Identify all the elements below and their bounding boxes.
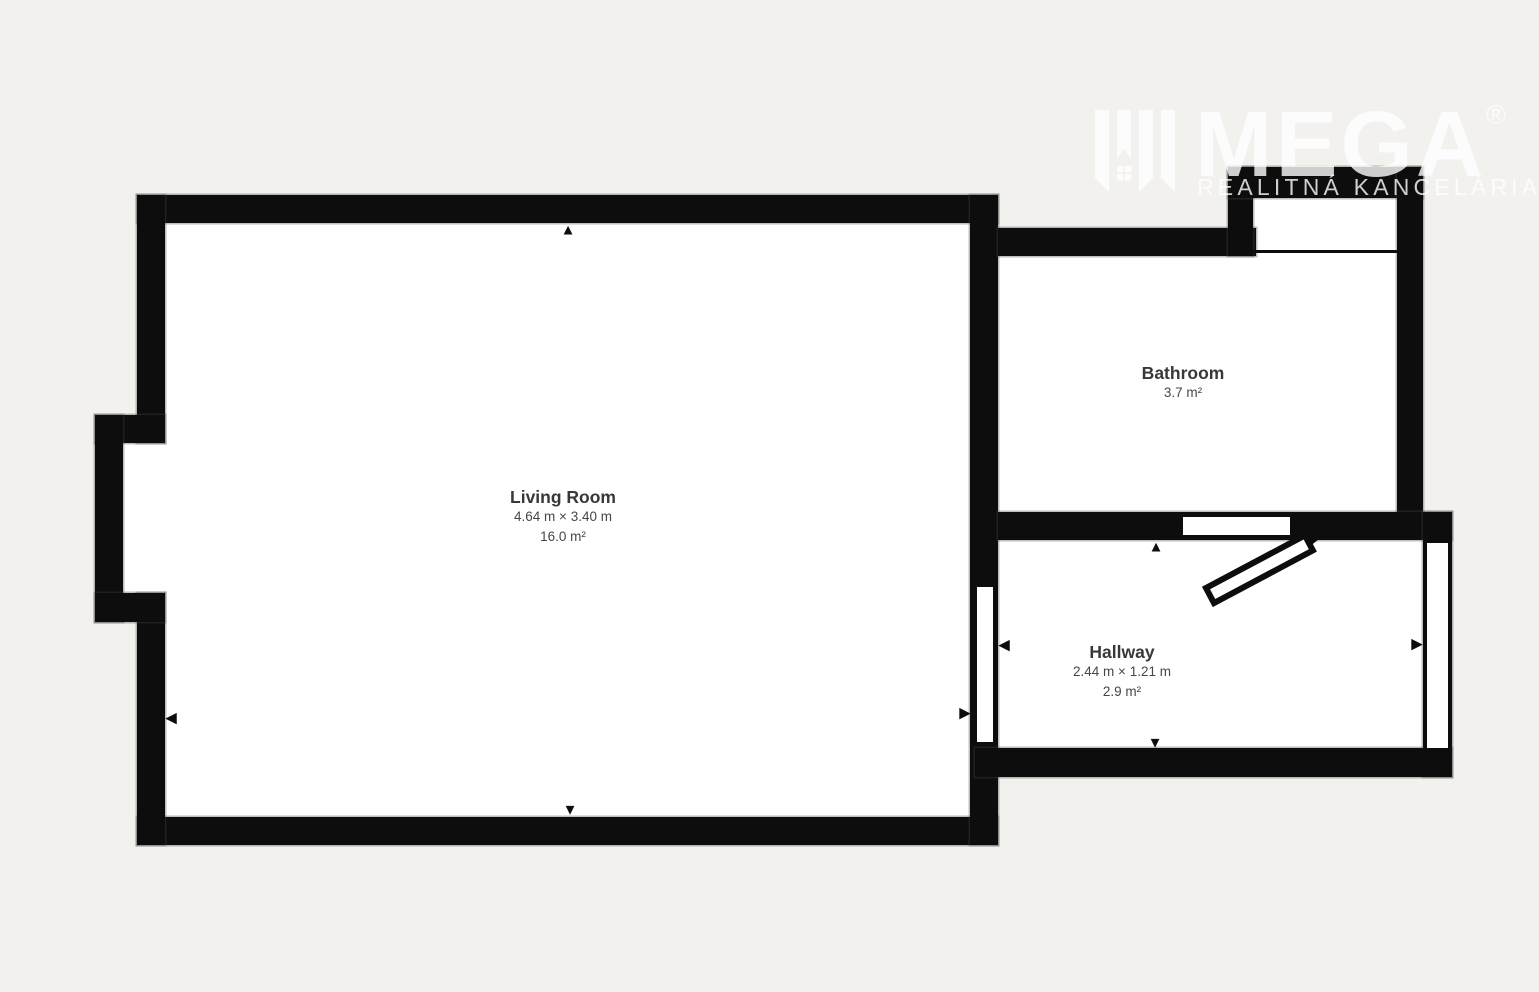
living-room-area: 16.0 m²: [510, 527, 616, 547]
living-room-left-wall-lower: [137, 593, 165, 845]
bathroom-name: Bathroom: [1142, 363, 1225, 383]
hallway-floor: [998, 540, 1423, 748]
registered-trademark-symbol: ®: [1486, 100, 1506, 131]
bathroom-upper-floor: [1253, 198, 1397, 513]
bathroom-label: Bathroom 3.7 m²: [1142, 363, 1225, 403]
hallway-right-window: [1424, 540, 1451, 751]
brand-house-icon: [1091, 104, 1193, 200]
arrow-up-icon: ▲: [561, 223, 576, 238]
arrow-right-icon: ▶: [959, 706, 971, 721]
arrow-left-icon: ◀: [998, 638, 1010, 653]
hallway-bottom-wall: [975, 748, 1452, 777]
hallway-dimensions: 2.44 m × 1.21 m: [1073, 662, 1171, 682]
living-room-left-wall-upper: [137, 195, 165, 443]
living-room-name: Living Room: [510, 487, 616, 507]
living-room-bottom-wall: [137, 817, 998, 845]
living-room-dimensions: 4.64 m × 3.40 m: [510, 507, 616, 527]
bathroom-partition-line: [1253, 250, 1397, 253]
hallway-label: Hallway 2.44 m × 1.21 m 2.9 m²: [1073, 642, 1171, 702]
bathroom-area: 3.7 m²: [1142, 383, 1225, 403]
living-room-top-wall: [137, 195, 998, 223]
hallway-area: 2.9 m²: [1073, 682, 1171, 702]
arrow-up-icon: ▲: [1149, 540, 1164, 555]
arrow-down-icon: ▼: [1148, 736, 1163, 751]
arrow-right-icon: ▶: [1411, 637, 1423, 652]
hallway-name: Hallway: [1073, 642, 1171, 662]
arrow-left-icon: ◀: [165, 711, 177, 726]
niche-bottom-wall: [95, 593, 165, 622]
door-opening: [1183, 517, 1292, 535]
living-room-label: Living Room 4.64 m × 3.40 m 16.0 m²: [510, 487, 616, 547]
arrow-down-icon: ▼: [563, 803, 578, 818]
bathroom-right-wall: [1397, 167, 1423, 512]
niche-left-wall: [95, 415, 123, 622]
living-room-hallway-window: [974, 584, 996, 745]
bathroom-top-wall-low: [998, 228, 1256, 256]
floor-plan-canvas: ▲ ▼ ◀ ▶ ▲ ▼ ◀ ▶ Living Room 4.64 m × 3.4…: [0, 0, 1539, 992]
bathroom-top-wall-high: [1228, 167, 1423, 198]
